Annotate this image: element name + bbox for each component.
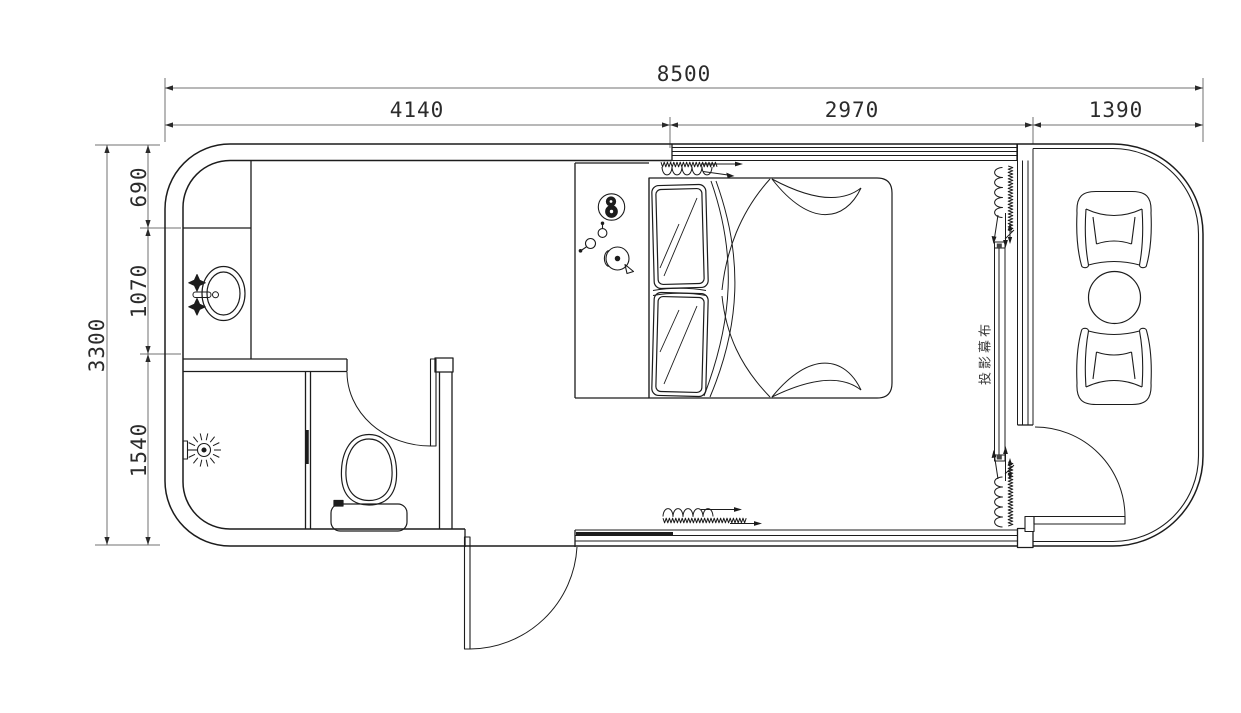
bottom-window-band bbox=[575, 530, 1018, 547]
wash-basin bbox=[202, 267, 245, 321]
floor-plan-drawing bbox=[0, 0, 1241, 713]
top-window-band bbox=[672, 144, 1017, 161]
small-jar-icon bbox=[586, 239, 596, 249]
projection-screen-label: 投影幕布 bbox=[975, 321, 994, 385]
pillow bbox=[652, 292, 709, 396]
shower-head-icon bbox=[183, 433, 221, 466]
floor-plan-canvas: 8500 4140 2970 1390 3300 690 1070 1540 投… bbox=[0, 0, 1241, 713]
curtain-track-top bbox=[661, 162, 743, 178]
dim-label-seg-4140: 4140 bbox=[390, 98, 445, 122]
toilet bbox=[331, 435, 407, 532]
dim-label-seg-690: 690 bbox=[127, 167, 151, 208]
sink-room-walls bbox=[183, 161, 251, 359]
blanket-folds bbox=[704, 179, 861, 397]
pillow bbox=[652, 184, 709, 288]
cabin-balcony-wall bbox=[1018, 144, 1034, 548]
curtain-track-bottom bbox=[663, 507, 762, 526]
projection-screen bbox=[995, 223, 1015, 480]
bathroom-walls bbox=[183, 358, 465, 547]
balcony-swing-door bbox=[1025, 427, 1125, 532]
armchair bbox=[1077, 328, 1152, 404]
kettle-icon bbox=[604, 247, 633, 274]
armchair bbox=[1077, 192, 1152, 268]
dim-label-seg-1540: 1540 bbox=[127, 423, 151, 478]
dim-label-seg-2970: 2970 bbox=[825, 98, 880, 122]
dim-label-seg-1390: 1390 bbox=[1089, 98, 1144, 122]
round-tea-table bbox=[1089, 272, 1141, 324]
dim-label-seg-1070: 1070 bbox=[127, 264, 151, 319]
bedside-kettle-set bbox=[579, 194, 633, 274]
dim-line-width-segments bbox=[165, 118, 1203, 132]
dim-label-total-height: 3300 bbox=[85, 318, 109, 373]
bathroom-swing-door bbox=[347, 359, 436, 446]
small-jar-icon bbox=[598, 229, 607, 238]
dim-label-total-width: 8500 bbox=[657, 62, 712, 86]
faucet-handles bbox=[189, 275, 219, 316]
double-bed bbox=[649, 178, 892, 398]
outer-shell-wall bbox=[165, 144, 1203, 546]
entry-swing-door bbox=[465, 537, 578, 649]
